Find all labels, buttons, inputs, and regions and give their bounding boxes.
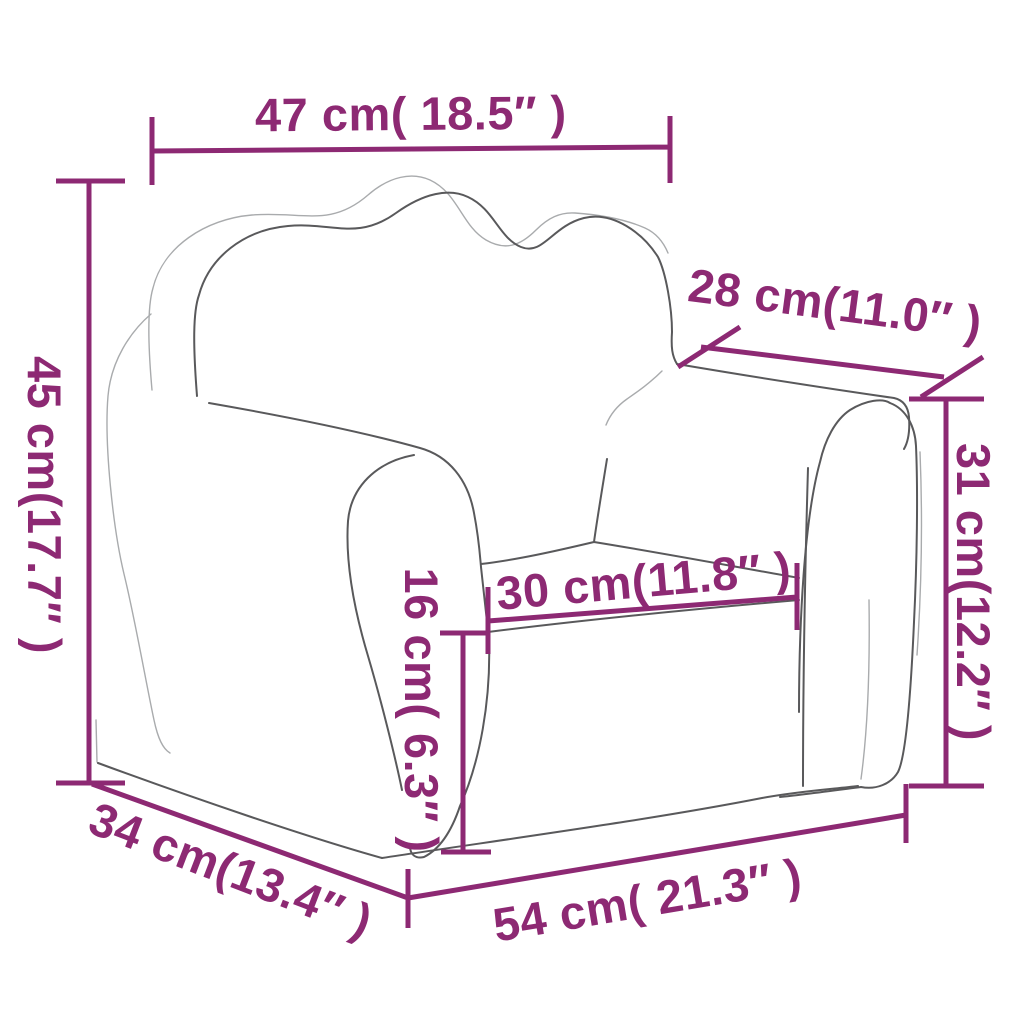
dimension-top-width-label: 47 cm( 18.5″ ) xyxy=(255,86,567,142)
dimension-seat-height-label: 16 cm( 6.3″ ) xyxy=(395,567,448,852)
chair-base-back-left-corner xyxy=(96,720,97,762)
chair-top-receding-edge xyxy=(677,364,909,449)
dimension-bottom-width: 54 cm( 21.3″ ) xyxy=(408,784,906,952)
dimension-top-right-depth: 28 cm(11.0″ ) xyxy=(678,258,985,397)
dimension-diagram: 47 cm( 18.5″ ) 45 cm(17.7″ ) 28 cm(11.0″… xyxy=(0,0,1024,1024)
dimension-left-height-label: 45 cm(17.7″ ) xyxy=(18,356,71,654)
chair-right-arm-outline xyxy=(780,400,917,797)
chair-backrest-front-wavy-top xyxy=(194,193,677,396)
dimension-right-height: 31 cm(12.2″ ) xyxy=(909,399,1000,786)
dimension-top-width: 47 cm( 18.5″ ) xyxy=(152,86,670,185)
diagram-svg: 47 cm( 18.5″ ) 45 cm(17.7″ ) 28 cm(11.0″… xyxy=(0,0,1024,1024)
chair-backrest-back-wavy-top xyxy=(149,176,668,390)
chair-right-arm-back-roll xyxy=(606,371,662,425)
dimension-bottom-width-label: 54 cm( 21.3″ ) xyxy=(489,848,805,952)
dimension-left-height: 45 cm(17.7″ ) xyxy=(18,181,125,783)
dimension-bottom-left-depth: 34 cm(13.4″ ) xyxy=(82,784,408,948)
chair-right-arm-front-left-edge xyxy=(803,468,808,786)
chair-right-arm-front-right-seam xyxy=(861,600,869,779)
dimension-seat-height: 16 cm( 6.3″ ) xyxy=(395,567,491,852)
chair-backrest-right-edge-to-seat xyxy=(594,459,607,542)
dimension-right-height-label: 31 cm(12.2″ ) xyxy=(947,443,1000,741)
chair-left-arm-outer-edge xyxy=(107,314,170,753)
dimension-seat-width: 30 cm(11.8″ ) xyxy=(488,541,797,654)
